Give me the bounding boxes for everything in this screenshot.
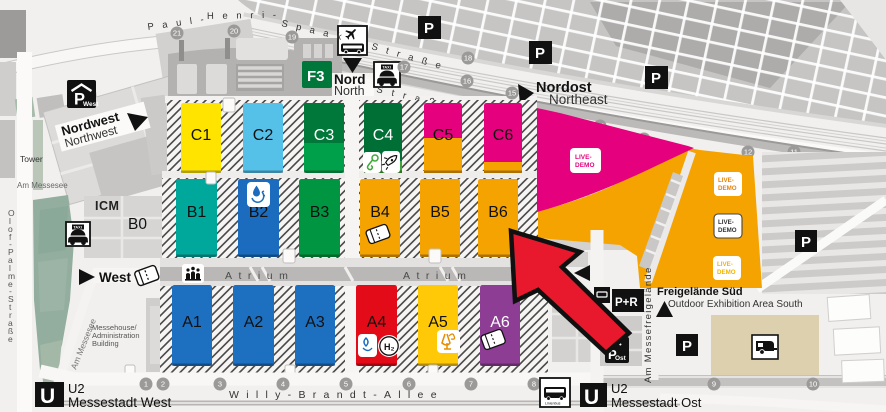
svg-text:Building: Building: [92, 339, 119, 348]
svg-text:15: 15: [508, 89, 516, 98]
svg-text:LIVE-: LIVE-: [575, 154, 592, 161]
svg-text:P: P: [801, 234, 811, 251]
svg-text:A4: A4: [367, 314, 387, 331]
svg-text:LIVE-: LIVE-: [718, 219, 734, 226]
svg-text:17: 17: [400, 63, 408, 72]
svg-text:e: e: [8, 334, 13, 344]
svg-text:B0: B0: [128, 216, 147, 233]
svg-text:B6: B6: [488, 204, 508, 221]
svg-text:DEMO: DEMO: [575, 162, 595, 169]
svg-text:U: U: [40, 385, 55, 408]
svg-text:7: 7: [469, 380, 473, 389]
svg-text:C6: C6: [493, 127, 514, 144]
svg-text:Ost: Ost: [615, 355, 627, 362]
svg-text:C4: C4: [373, 127, 394, 144]
svg-text:LIVE-: LIVE-: [718, 177, 734, 184]
svg-text:U2: U2: [68, 381, 85, 396]
svg-text:Messestadt Ost: Messestadt Ost: [611, 395, 702, 410]
svg-text:Linienbus: Linienbus: [545, 402, 561, 406]
svg-text:C2: C2: [253, 127, 274, 144]
svg-text:F3: F3: [307, 68, 325, 85]
svg-text:16: 16: [463, 77, 471, 86]
svg-text:ICM: ICM: [95, 199, 119, 213]
svg-text:Am Messefreigelände: Am Messefreigelände: [643, 266, 654, 383]
svg-text:Freigelände Süd: Freigelände Süd: [657, 286, 743, 298]
svg-text:B1: B1: [187, 204, 207, 221]
svg-text:3: 3: [218, 380, 222, 389]
svg-text:TAXI: TAXI: [382, 66, 390, 70]
svg-text:10: 10: [809, 380, 817, 389]
svg-text:P: P: [424, 20, 434, 37]
svg-text:P: P: [535, 45, 545, 62]
svg-text:U: U: [584, 386, 599, 409]
svg-text:West: West: [83, 101, 99, 108]
svg-text:West: West: [99, 270, 132, 285]
svg-text:6: 6: [407, 380, 411, 389]
svg-text:A5: A5: [428, 314, 448, 331]
svg-text:P: P: [651, 70, 661, 87]
svg-text:20: 20: [230, 27, 238, 36]
svg-text:5: 5: [344, 380, 348, 389]
svg-text:H₂: H₂: [384, 342, 395, 352]
svg-text:A1: A1: [182, 314, 202, 331]
svg-text:Am Messesee: Am Messesee: [17, 181, 68, 190]
svg-text:A3: A3: [305, 314, 325, 331]
svg-text:LIVE-: LIVE-: [717, 261, 733, 268]
svg-text:Atrium: Atrium: [403, 270, 472, 282]
svg-text:H e n r i -: H e n r i -: [207, 10, 279, 22]
svg-text:TAXI: TAXI: [73, 226, 81, 230]
svg-text:B5: B5: [430, 204, 450, 221]
svg-text:21: 21: [173, 29, 181, 38]
svg-text:2: 2: [161, 380, 165, 389]
svg-text:18: 18: [464, 54, 472, 63]
svg-text:C1: C1: [191, 127, 212, 144]
svg-text:Willy-Brandt-Allee: Willy-Brandt-Allee: [229, 389, 444, 401]
svg-text:19: 19: [288, 33, 296, 42]
svg-text:Outdoor Exhibition Area South: Outdoor Exhibition Area South: [668, 299, 803, 310]
svg-text:P+R: P+R: [615, 297, 638, 309]
svg-text:A2: A2: [244, 314, 264, 331]
svg-text:C5: C5: [433, 127, 454, 144]
svg-text:8: 8: [532, 380, 536, 389]
svg-text:U2: U2: [611, 381, 628, 396]
svg-text:B3: B3: [310, 204, 330, 221]
svg-text:C3: C3: [314, 127, 335, 144]
svg-text:1: 1: [144, 380, 148, 389]
svg-text:Northeast: Northeast: [549, 92, 608, 107]
svg-text:Messestadt West: Messestadt West: [68, 395, 172, 410]
svg-text:Atrium: Atrium: [225, 270, 294, 282]
svg-text:P: P: [682, 338, 692, 355]
svg-text:North: North: [334, 84, 365, 98]
svg-text:9: 9: [712, 380, 716, 389]
svg-text:Tower: Tower: [20, 154, 43, 164]
svg-text:B4: B4: [370, 204, 390, 221]
svg-text:DEMO: DEMO: [718, 185, 737, 192]
svg-text:4: 4: [281, 380, 285, 389]
svg-text:DEMO: DEMO: [717, 269, 736, 276]
svg-text:DEMO: DEMO: [718, 227, 737, 234]
